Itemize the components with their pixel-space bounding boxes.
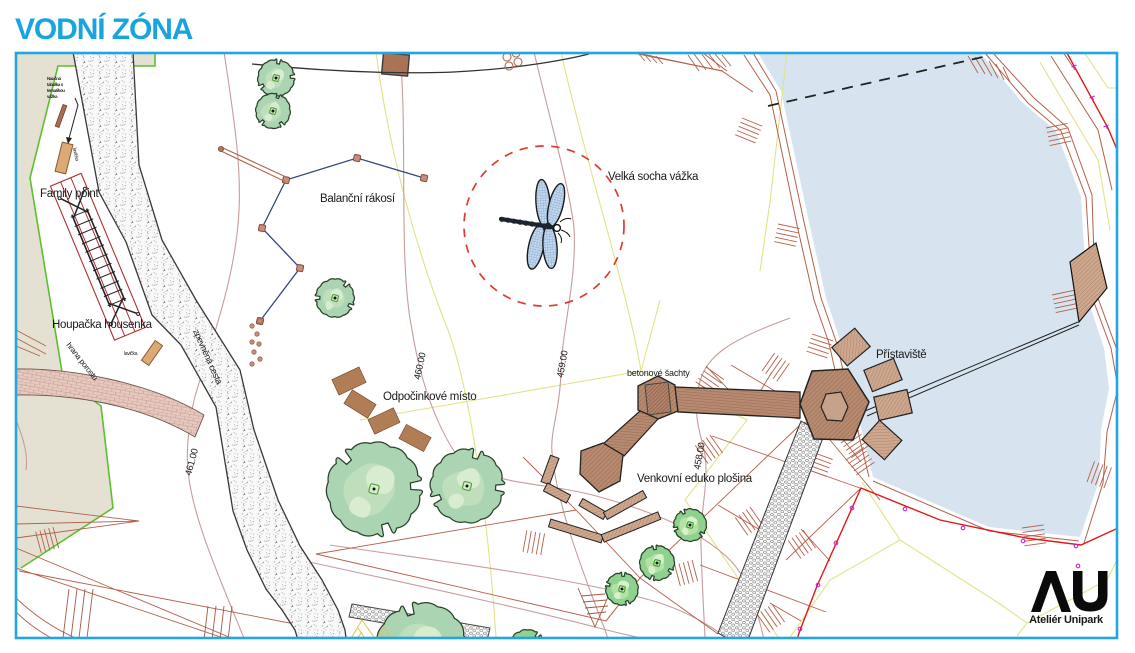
svg-text:461.00: 461.00 bbox=[183, 448, 201, 477]
svg-text:vážka: vážka bbox=[47, 94, 58, 99]
svg-text:tematikou: tematikou bbox=[47, 88, 65, 93]
svg-text:Odpočinkové místo: Odpočinkové místo bbox=[383, 391, 476, 403]
svg-text:Balanční rákosí: Balanční rákosí bbox=[320, 193, 396, 205]
svg-text:Naučná: Naučná bbox=[47, 76, 62, 81]
svg-text:458.00: 458.00 bbox=[692, 442, 708, 471]
svg-text:lavička: lavička bbox=[124, 351, 138, 357]
svg-text:Přístaviště: Přístaviště bbox=[876, 349, 926, 361]
svg-text:459.00: 459.00 bbox=[555, 350, 571, 379]
svg-text:460.00: 460.00 bbox=[412, 352, 428, 381]
svg-text:lavička: lavička bbox=[71, 147, 80, 162]
svg-text:tabulka s: tabulka s bbox=[47, 82, 64, 87]
svg-text:Ateliér Unipark: Ateliér Unipark bbox=[1029, 614, 1104, 626]
svg-text:Velká socha vážka: Velká socha vážka bbox=[608, 171, 699, 183]
svg-text:Venkovní eduko plošina: Venkovní eduko plošina bbox=[637, 473, 753, 485]
svg-text:betonové šachty: betonové šachty bbox=[627, 368, 690, 378]
svg-text:Houpačka housenka: Houpačka housenka bbox=[52, 319, 153, 331]
svg-text:Family point: Family point bbox=[40, 188, 99, 200]
